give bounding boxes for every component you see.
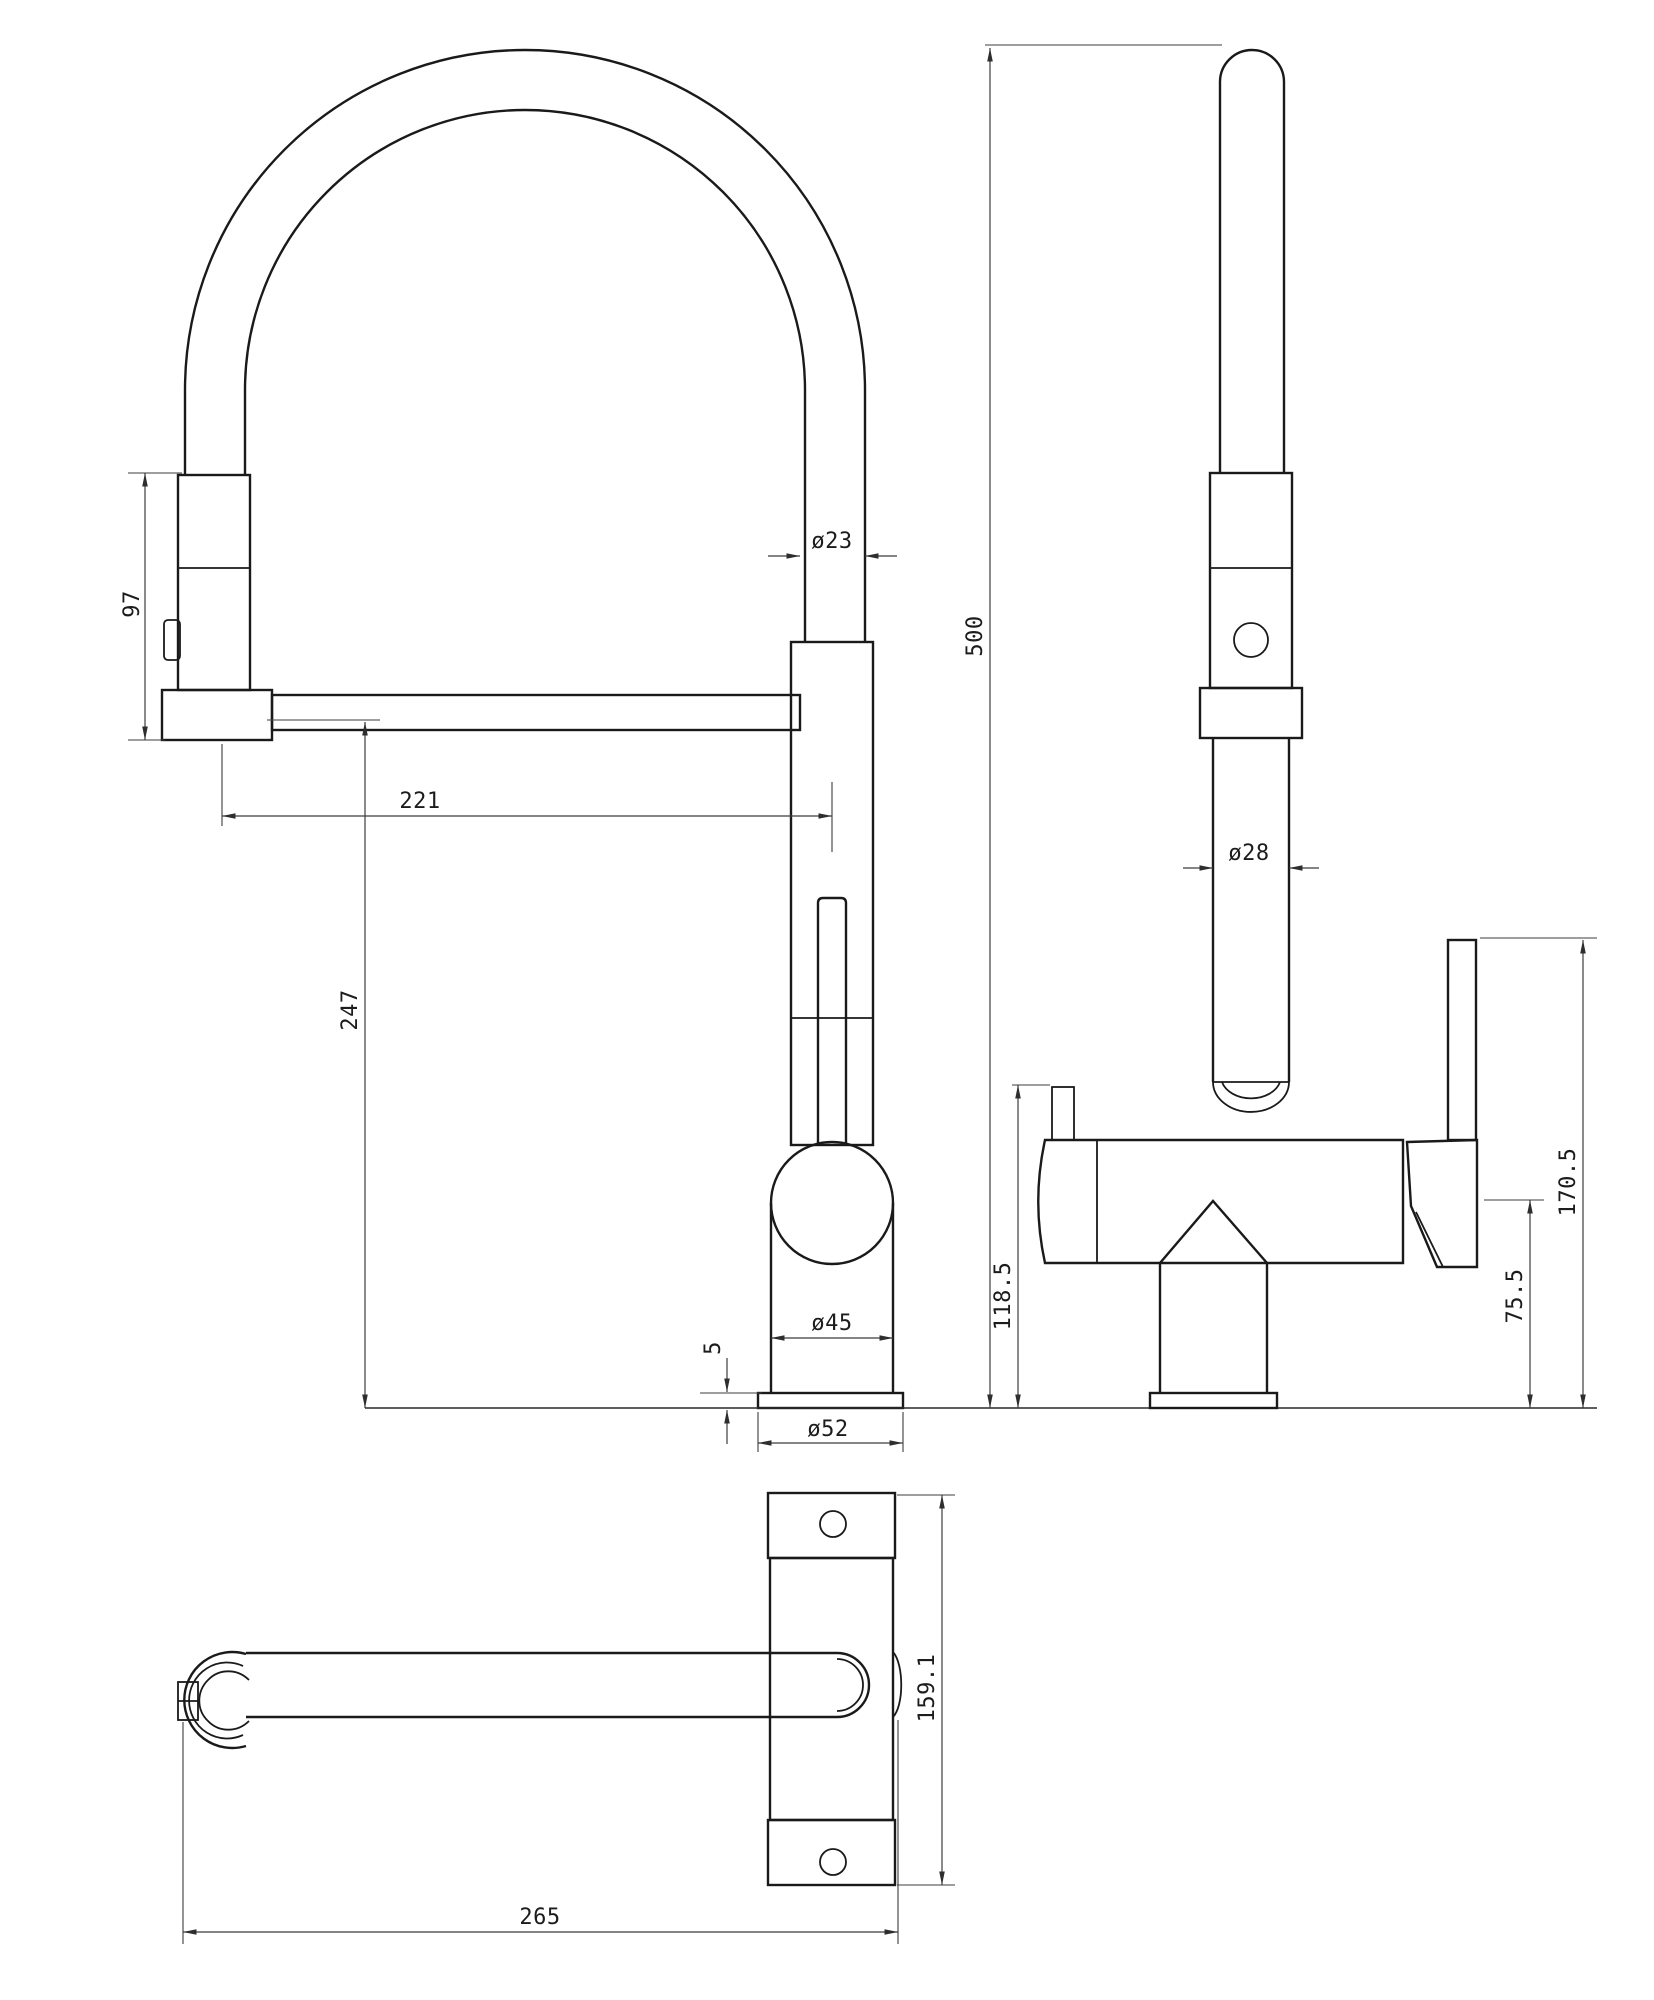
dim-spray-head-height: 97	[120, 473, 182, 740]
plan-top-screw-hole	[820, 1511, 846, 1537]
plan-bottom-screw-hole	[820, 1849, 846, 1875]
plan-body-column	[770, 1558, 893, 1820]
dim-label-97: 97	[120, 590, 145, 618]
dim-lever-top-height: 170.5	[1480, 938, 1597, 1408]
dim-base-plate-thickness: 5	[700, 1341, 762, 1444]
faucet-technical-drawing-page: 97 ø23 221 247 ø45	[0, 0, 1654, 2000]
plan-body-right-bulge	[893, 1652, 901, 1717]
dim-body-diameter: ø45	[771, 1311, 893, 1338]
spray-head-body	[178, 475, 250, 690]
dim-label-o52: ø52	[807, 1417, 848, 1442]
body-top-button	[1052, 1087, 1074, 1140]
dim-label-o23: ø23	[811, 529, 852, 554]
handle-lever-front	[818, 898, 846, 1145]
plan-top-block	[768, 1493, 895, 1558]
dim-overall-height: 500	[963, 45, 1222, 1408]
dim-hose-diameter: ø23	[768, 529, 897, 556]
hose-tube-side	[1220, 50, 1284, 473]
handle-lever-side	[1448, 940, 1476, 1140]
dim-label-o28: ø28	[1228, 841, 1269, 866]
spray-head-side	[1210, 473, 1292, 688]
plan-head-arc-outer	[184, 1652, 246, 1748]
riser-column	[791, 642, 873, 1145]
plan-spout-cap-outer	[837, 1653, 869, 1717]
front-view: 97 ø23 221 247 ø45	[120, 50, 1597, 1452]
handle-inner-edge	[1416, 1212, 1443, 1267]
dim-label-159-1: 159.1	[915, 1654, 940, 1723]
base-plate-side	[1150, 1393, 1277, 1408]
hose-collar-side	[1200, 688, 1302, 738]
dim-overall-depth: 265	[183, 1720, 898, 1944]
dim-label-118-5: 118.5	[991, 1262, 1016, 1331]
dim-label-265: 265	[519, 1905, 560, 1930]
dim-base-diameter: ø52	[758, 1412, 903, 1452]
dim-label-247: 247	[338, 989, 363, 1030]
handle-body-side	[1407, 1140, 1477, 1267]
dim-spout-reach: 221	[222, 744, 832, 852]
dim-spout-outlet-height: 247	[267, 720, 380, 1408]
dim-label-75-5: 75.5	[1503, 1269, 1528, 1324]
plan-head-arc-inner	[199, 1671, 249, 1729]
base-plate-front	[758, 1393, 903, 1408]
dim-handle-pivot-height: 75.5	[1484, 1200, 1544, 1408]
dim-label-221: 221	[399, 789, 440, 814]
hose-arch-outer	[185, 50, 865, 642]
dim-column-diameter: ø28	[1183, 841, 1319, 868]
plan-spout-cap-inner	[837, 1659, 863, 1711]
dim-label-o45: ø45	[811, 1311, 852, 1336]
dim-label-500: 500	[963, 615, 988, 656]
stem-chamfer	[1160, 1201, 1267, 1263]
column-socket-inner	[1222, 1082, 1280, 1098]
faucet-technical-drawing: 97 ø23 221 247 ø45	[0, 0, 1654, 2000]
spray-head-side-button	[1234, 623, 1268, 657]
body-side	[1038, 1140, 1403, 1263]
plan-view: 159.1 265	[178, 1493, 955, 1944]
side-view: 500 ø28 118.5 75.5 170.5	[963, 45, 1597, 1408]
hose-arch-inner	[245, 110, 805, 642]
spray-head-outlet-foot	[162, 690, 272, 740]
dim-label-5: 5	[701, 1341, 726, 1355]
spout-arm	[272, 695, 800, 730]
dim-footprint-length: 159.1	[897, 1495, 955, 1885]
dim-label-170-5: 170.5	[1556, 1148, 1581, 1217]
ball-joint	[771, 1142, 893, 1264]
